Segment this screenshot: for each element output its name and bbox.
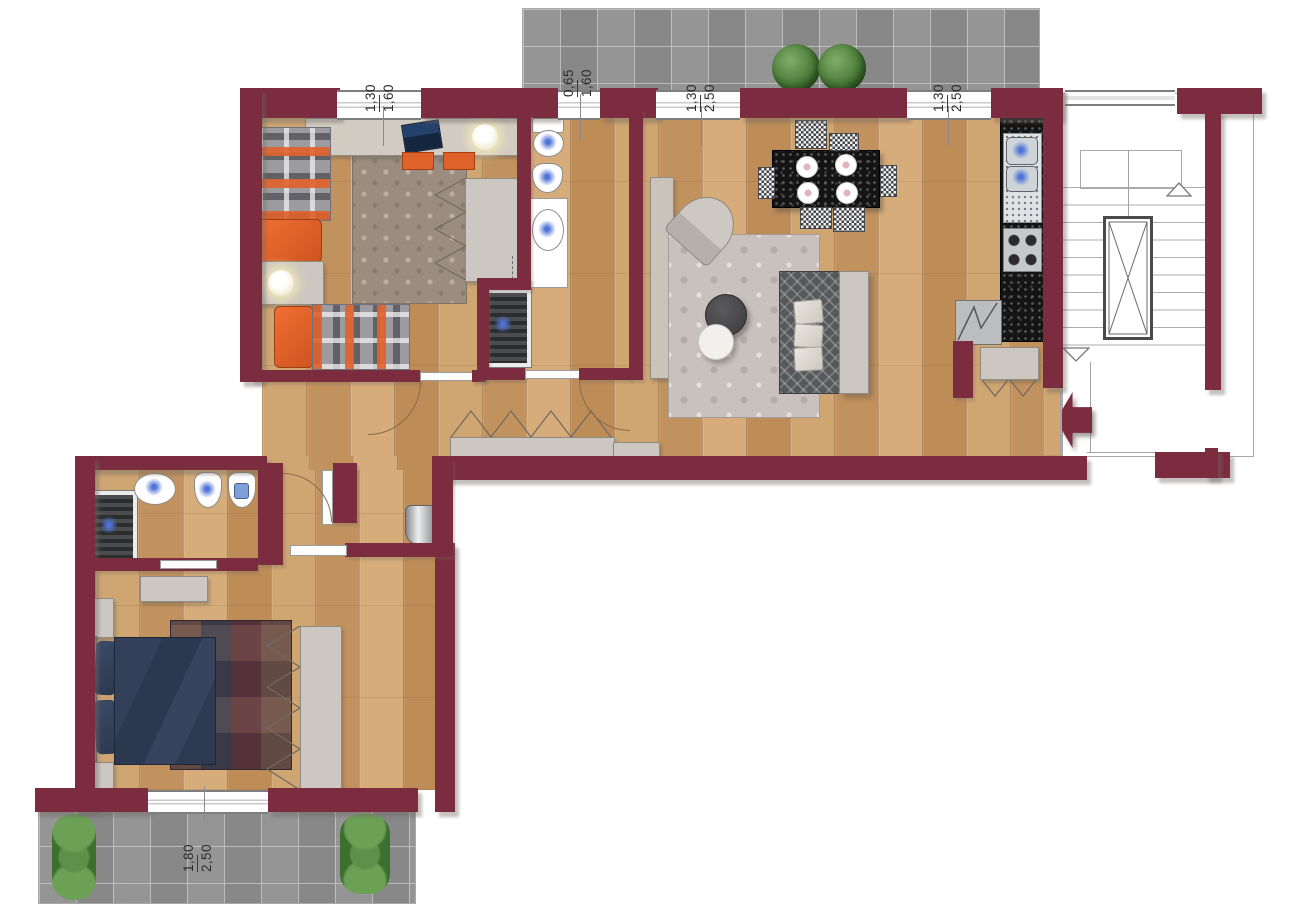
wall: [517, 108, 531, 284]
dim-value: 2,50: [199, 816, 214, 872]
wall: [252, 370, 420, 382]
kids-bed2-pillow: [274, 306, 314, 368]
wall: [421, 88, 558, 118]
wall: [75, 456, 267, 470]
bath1-door-leaf: [525, 370, 581, 379]
dining-chair: [795, 120, 827, 149]
dining-plate-icon: [835, 154, 857, 176]
dimension-label-bedroom-window: 1,80 2,50: [181, 816, 214, 872]
dining-chair: [758, 167, 775, 199]
kids-wardrobe-open-doors-icon: [432, 178, 466, 280]
sofa-cushion: [793, 299, 824, 325]
dim-value: 1,80: [181, 816, 196, 872]
wall: [435, 543, 455, 812]
dining-chair: [880, 165, 897, 197]
bedroom-wardrobe-open-doors-icon: [264, 626, 300, 790]
wall: [477, 368, 525, 380]
sofa-side-panel: [839, 271, 869, 394]
bedroom-door-leaf: [290, 545, 347, 556]
nightstand-lamp-icon: [268, 270, 294, 296]
sofa-cushion: [793, 323, 824, 349]
sofa-cushion: [793, 346, 823, 371]
wall: [1043, 88, 1063, 388]
stairs-down-arrow-icon: [1062, 347, 1090, 362]
toilet-water-icon: [539, 133, 557, 151]
kids-bed-pillow: [258, 219, 322, 263]
bath1-shower-water-icon: [494, 315, 512, 333]
kids-bed-horizontal: [312, 304, 410, 370]
stair-divider-line: [1128, 150, 1129, 218]
stairwell-window: [1065, 90, 1175, 106]
dim-value: 1,60: [381, 54, 396, 112]
bath1-sink-water-icon: [538, 220, 556, 238]
balcony-hedge-icon: [340, 814, 390, 894]
dimension-leader-line: [383, 106, 384, 146]
dining-chair: [833, 207, 865, 232]
wall: [953, 341, 973, 398]
wall: [432, 456, 1087, 480]
wall: [268, 788, 418, 812]
wall: [432, 458, 453, 548]
stair-lobby-line: [1087, 452, 1155, 453]
wall: [740, 88, 907, 118]
dimension-leader-line: [948, 106, 949, 146]
wall: [629, 108, 643, 380]
wall: [1205, 110, 1221, 390]
bath2-shower-water-icon: [100, 516, 118, 534]
dimension-label-bath1-window: 0,65 1,60: [561, 47, 594, 97]
bath2-shelf: [160, 560, 217, 569]
dining-chair: [829, 133, 859, 151]
dim-value: 0,65: [561, 47, 576, 97]
kids-bed-vertical: [257, 127, 331, 221]
dining-plate-icon: [836, 182, 858, 204]
dim-value: 2,50: [702, 54, 717, 112]
dimension-label-living-window-left: 1,30 2,50: [684, 54, 717, 112]
wall: [579, 368, 631, 380]
dim-divider: [577, 80, 578, 97]
kitchen-base-cabinet: [980, 347, 1039, 380]
bath2-bidet-water-icon: [198, 480, 216, 498]
window-bedroom: [148, 790, 268, 814]
bidet-water-icon: [538, 168, 556, 186]
dimension-label-living-window-right: 1,30 2,50: [931, 54, 964, 112]
dimension-label-kids-window: 1,30 1,60: [363, 54, 396, 112]
dim-value: 2,50: [949, 54, 964, 112]
dim-divider: [197, 855, 198, 872]
dimension-leader-line: [204, 786, 205, 820]
dining-chair: [800, 207, 832, 229]
terrace-plant-icon: [818, 44, 866, 92]
wall: [240, 88, 262, 382]
wall: [1155, 452, 1230, 478]
hall-cabinet-open-doors-icon: [450, 408, 614, 438]
sink-water-icon: [1012, 168, 1030, 186]
kitchen-stove: [1003, 228, 1042, 272]
dining-table: [772, 150, 880, 208]
wall: [333, 463, 357, 523]
dim-value: 1,30: [684, 54, 699, 112]
desk-lamp-icon: [472, 124, 498, 150]
laptop-icon: [401, 119, 443, 154]
balcony-hedge-icon: [52, 814, 96, 900]
dimension-leader-line: [701, 106, 702, 146]
dining-plate-icon: [796, 156, 818, 178]
dim-value: 1,30: [931, 54, 946, 112]
dimension-leader-line: [580, 94, 581, 140]
bedroom-dresser: [140, 576, 208, 602]
bath2-sink-water-icon: [145, 478, 163, 496]
double-bed: [114, 637, 216, 765]
dining-plate-icon: [797, 182, 819, 204]
stairs-up-arrow-icon: [1166, 182, 1192, 197]
dim-divider: [379, 95, 380, 112]
terrace-plant-icon: [772, 44, 820, 92]
wall: [477, 284, 489, 370]
dim-value: 1,60: [579, 47, 594, 97]
wall: [1205, 448, 1218, 478]
wall: [75, 456, 95, 810]
wall: [258, 463, 283, 565]
coffee-table-white: [698, 324, 734, 360]
dim-value: 1,30: [363, 54, 378, 112]
entry-door-line: [1060, 390, 1061, 454]
fridge-door-icon: [955, 300, 1000, 343]
cabinet-open-doors-icon: [980, 378, 1037, 398]
floor-plan: 1,30 1,60 0,65 1,60 1,30 2,50 1,30 2,50 …: [0, 0, 1298, 908]
kids-chair: [402, 152, 434, 170]
elevator-icon: [1103, 216, 1153, 340]
kids-chair: [443, 152, 475, 170]
bath2-toilet-lid-icon: [234, 483, 249, 499]
wall: [35, 788, 148, 812]
wall: [345, 543, 453, 557]
bedroom-wardrobe: [300, 626, 342, 792]
kids-door-leaf: [420, 372, 474, 381]
sink-water-icon: [1012, 141, 1030, 159]
